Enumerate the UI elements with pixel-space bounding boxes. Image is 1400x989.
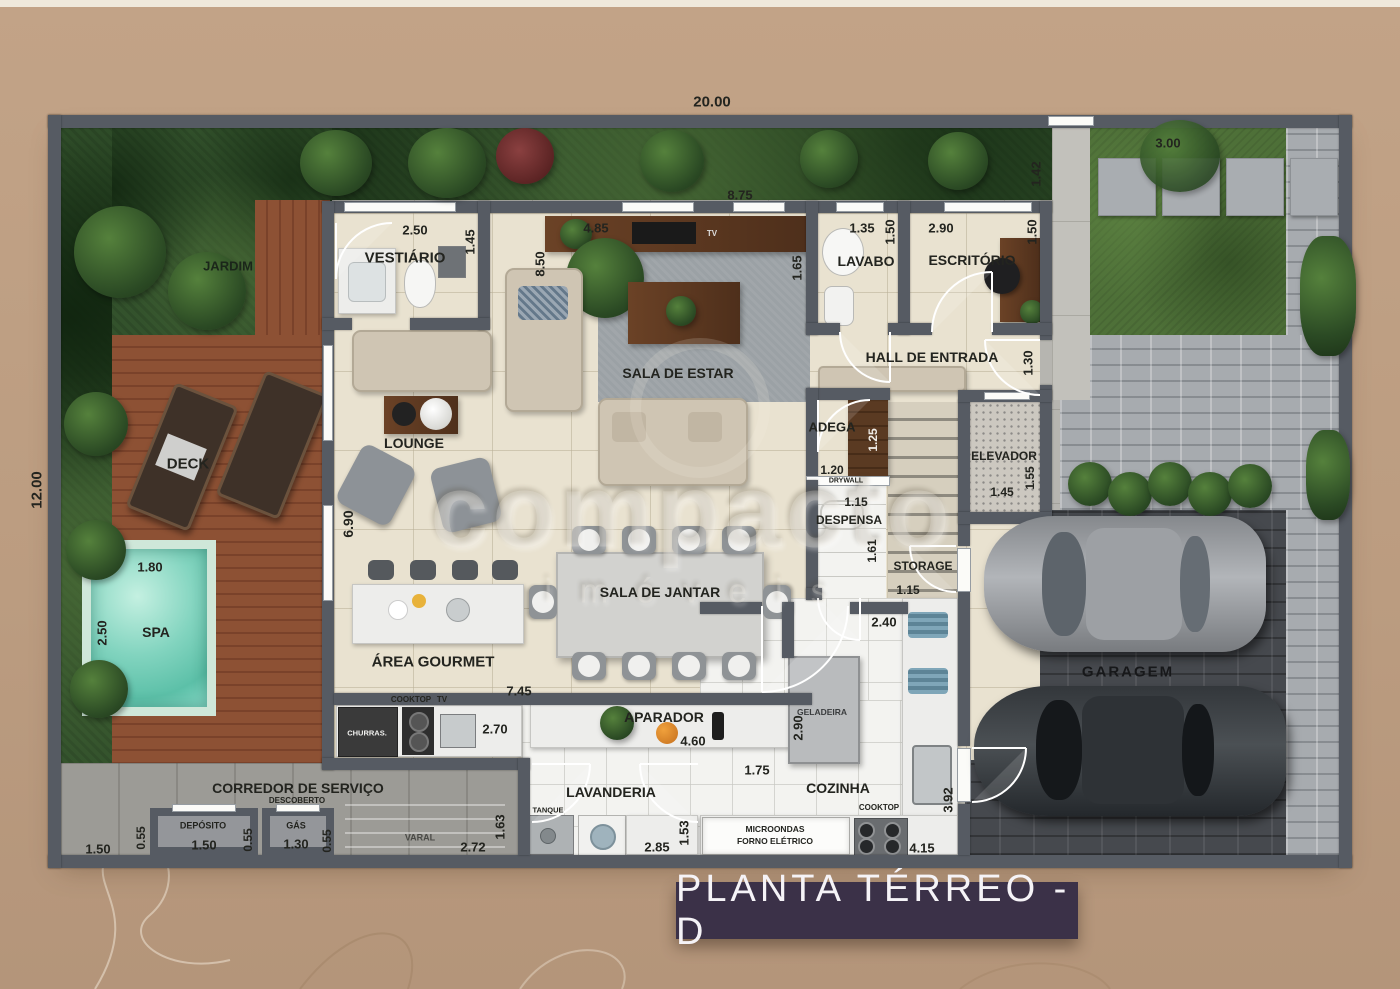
label-gourmet-cooktop: COOKTOP xyxy=(391,696,431,704)
label-gourmet-tv: TV xyxy=(437,696,447,704)
dim-elevador-width: 1.45 xyxy=(990,486,1013,498)
label-adega: ADEGA xyxy=(809,421,856,434)
dim-lavabo-depth: 1.50 xyxy=(884,219,897,244)
dim-escritorio-depth: 1.50 xyxy=(1026,219,1039,244)
label-varal: VARAL xyxy=(405,834,435,843)
label-tv-sala: TV xyxy=(707,230,717,238)
label-elevador: ELEVADOR xyxy=(971,450,1037,462)
label-despensa: DESPENSA xyxy=(816,514,882,526)
label-microondas: MICROONDAS xyxy=(745,825,804,834)
label-sala-jantar: SALA DE JANTAR xyxy=(600,585,721,599)
dim-adega-depth: 1.25 xyxy=(867,428,879,451)
label-spa: SPA xyxy=(142,625,170,639)
label-cozinha: COZINHA xyxy=(806,781,870,795)
dim-despensa-width: 1.15 xyxy=(844,496,867,508)
label-aparador: APARADOR xyxy=(624,710,704,724)
dim-cozinha-depth: 3.92 xyxy=(942,787,955,812)
dim-cozinha-counter: 4.15 xyxy=(909,842,934,855)
label-vestiario: VESTIÁRIO xyxy=(365,251,446,266)
dim-total-height: 12.00 xyxy=(30,471,45,509)
label-lavabo: LAVABO xyxy=(837,254,894,268)
label-cozinha-cooktop: COOKTOP xyxy=(859,804,899,812)
dim-varal-width: 2.72 xyxy=(460,841,485,854)
dim-escritorio-width: 2.90 xyxy=(928,222,953,235)
dim-total-width: 20.00 xyxy=(693,95,731,110)
dim-stepping-stones: 3.00 xyxy=(1155,137,1180,150)
label-forno-eletrico: FORNO ELÉTRICO xyxy=(737,837,813,846)
dim-living-width: 6.90 xyxy=(341,510,355,537)
dim-corredor-gap3: 0.55 xyxy=(321,829,333,852)
dim-entry-gate: 1.42 xyxy=(1030,161,1043,186)
label-gas: GÁS xyxy=(286,822,306,831)
plan-title: PLANTA TÉRREO - D xyxy=(676,868,1078,954)
dim-adega-width: 1.20 xyxy=(820,464,843,476)
label-deck: DECK xyxy=(167,457,210,472)
dim-spa-depth: 2.50 xyxy=(96,620,109,645)
floor-plan-canvas: compacto imóveis 20.00 12.00 1.42 3.00 J… xyxy=(0,0,1400,989)
dim-lavanderia-depth: 1.53 xyxy=(678,820,691,845)
label-escritorio: ESCRITÓRIO xyxy=(928,253,1015,267)
dim-lavabo-side: 1.65 xyxy=(791,255,804,280)
label-churrasqueira: CHURRAS. xyxy=(347,729,387,737)
dim-sala-width: 4.85 xyxy=(583,222,608,235)
dim-gourmet-width: 7.45 xyxy=(506,685,531,698)
dim-elevador-depth: 1.55 xyxy=(1024,466,1036,489)
dim-deposito-width: 1.50 xyxy=(191,839,216,852)
label-descoberto: DESCOBERTO xyxy=(269,797,325,805)
dim-storage-width: 1.15 xyxy=(896,584,919,596)
label-geladeira: GELADEIRA xyxy=(797,708,847,717)
dim-corredor-gap1: 0.55 xyxy=(135,826,147,849)
label-lounge: LOUNGE xyxy=(384,436,444,450)
dim-vestiario-depth: 1.45 xyxy=(464,229,477,254)
dim-vestiario-width: 2.50 xyxy=(402,224,427,237)
plan-title-banner: PLANTA TÉRREO - D xyxy=(676,882,1078,939)
label-sala-estar: SALA DE ESTAR xyxy=(622,366,733,380)
dim-cozinha-width: 1.75 xyxy=(744,764,769,777)
dim-corredor-gap2: 0.55 xyxy=(242,828,254,851)
dim-aparador-depth: 2.90 xyxy=(792,715,805,740)
label-hall-entrada: HALL DE ENTRADA xyxy=(866,350,999,364)
dim-spa-width: 1.80 xyxy=(137,561,162,574)
label-garagem: GARAGEM xyxy=(1082,665,1174,680)
label-deposito: DEPÓSITO xyxy=(180,822,226,831)
label-corredor-servico: CORREDOR DE SERVIÇO xyxy=(212,781,384,795)
label-jardim: JARDIM xyxy=(203,260,253,273)
dim-lavanderia-side: 1.63 xyxy=(494,814,507,839)
dim-sala-depth: 8.50 xyxy=(534,251,547,276)
dim-gourmet-counter: 2.70 xyxy=(482,723,507,736)
label-area-gourmet: ÁREA GOURMET xyxy=(372,655,495,670)
dim-lavabo-width: 1.35 xyxy=(849,222,874,235)
label-drywall: DRYWALL xyxy=(829,478,863,485)
label-tanque: TANQUE xyxy=(532,806,563,814)
dim-despensa-depth: 1.61 xyxy=(866,539,878,562)
label-lavanderia: LAVANDERIA xyxy=(566,785,656,799)
dim-cozinha-door: 2.40 xyxy=(871,616,896,629)
dim-aparador-width: 4.60 xyxy=(680,735,705,748)
dim-hall-door: 1.30 xyxy=(1022,350,1035,375)
dim-gas-width: 1.30 xyxy=(283,838,308,851)
label-storage: STORAGE xyxy=(893,560,952,572)
dim-sala-wall: 8.75 xyxy=(727,189,752,202)
dim-lavanderia-width: 2.85 xyxy=(644,841,669,854)
dim-corredor-left: 1.50 xyxy=(85,843,110,856)
